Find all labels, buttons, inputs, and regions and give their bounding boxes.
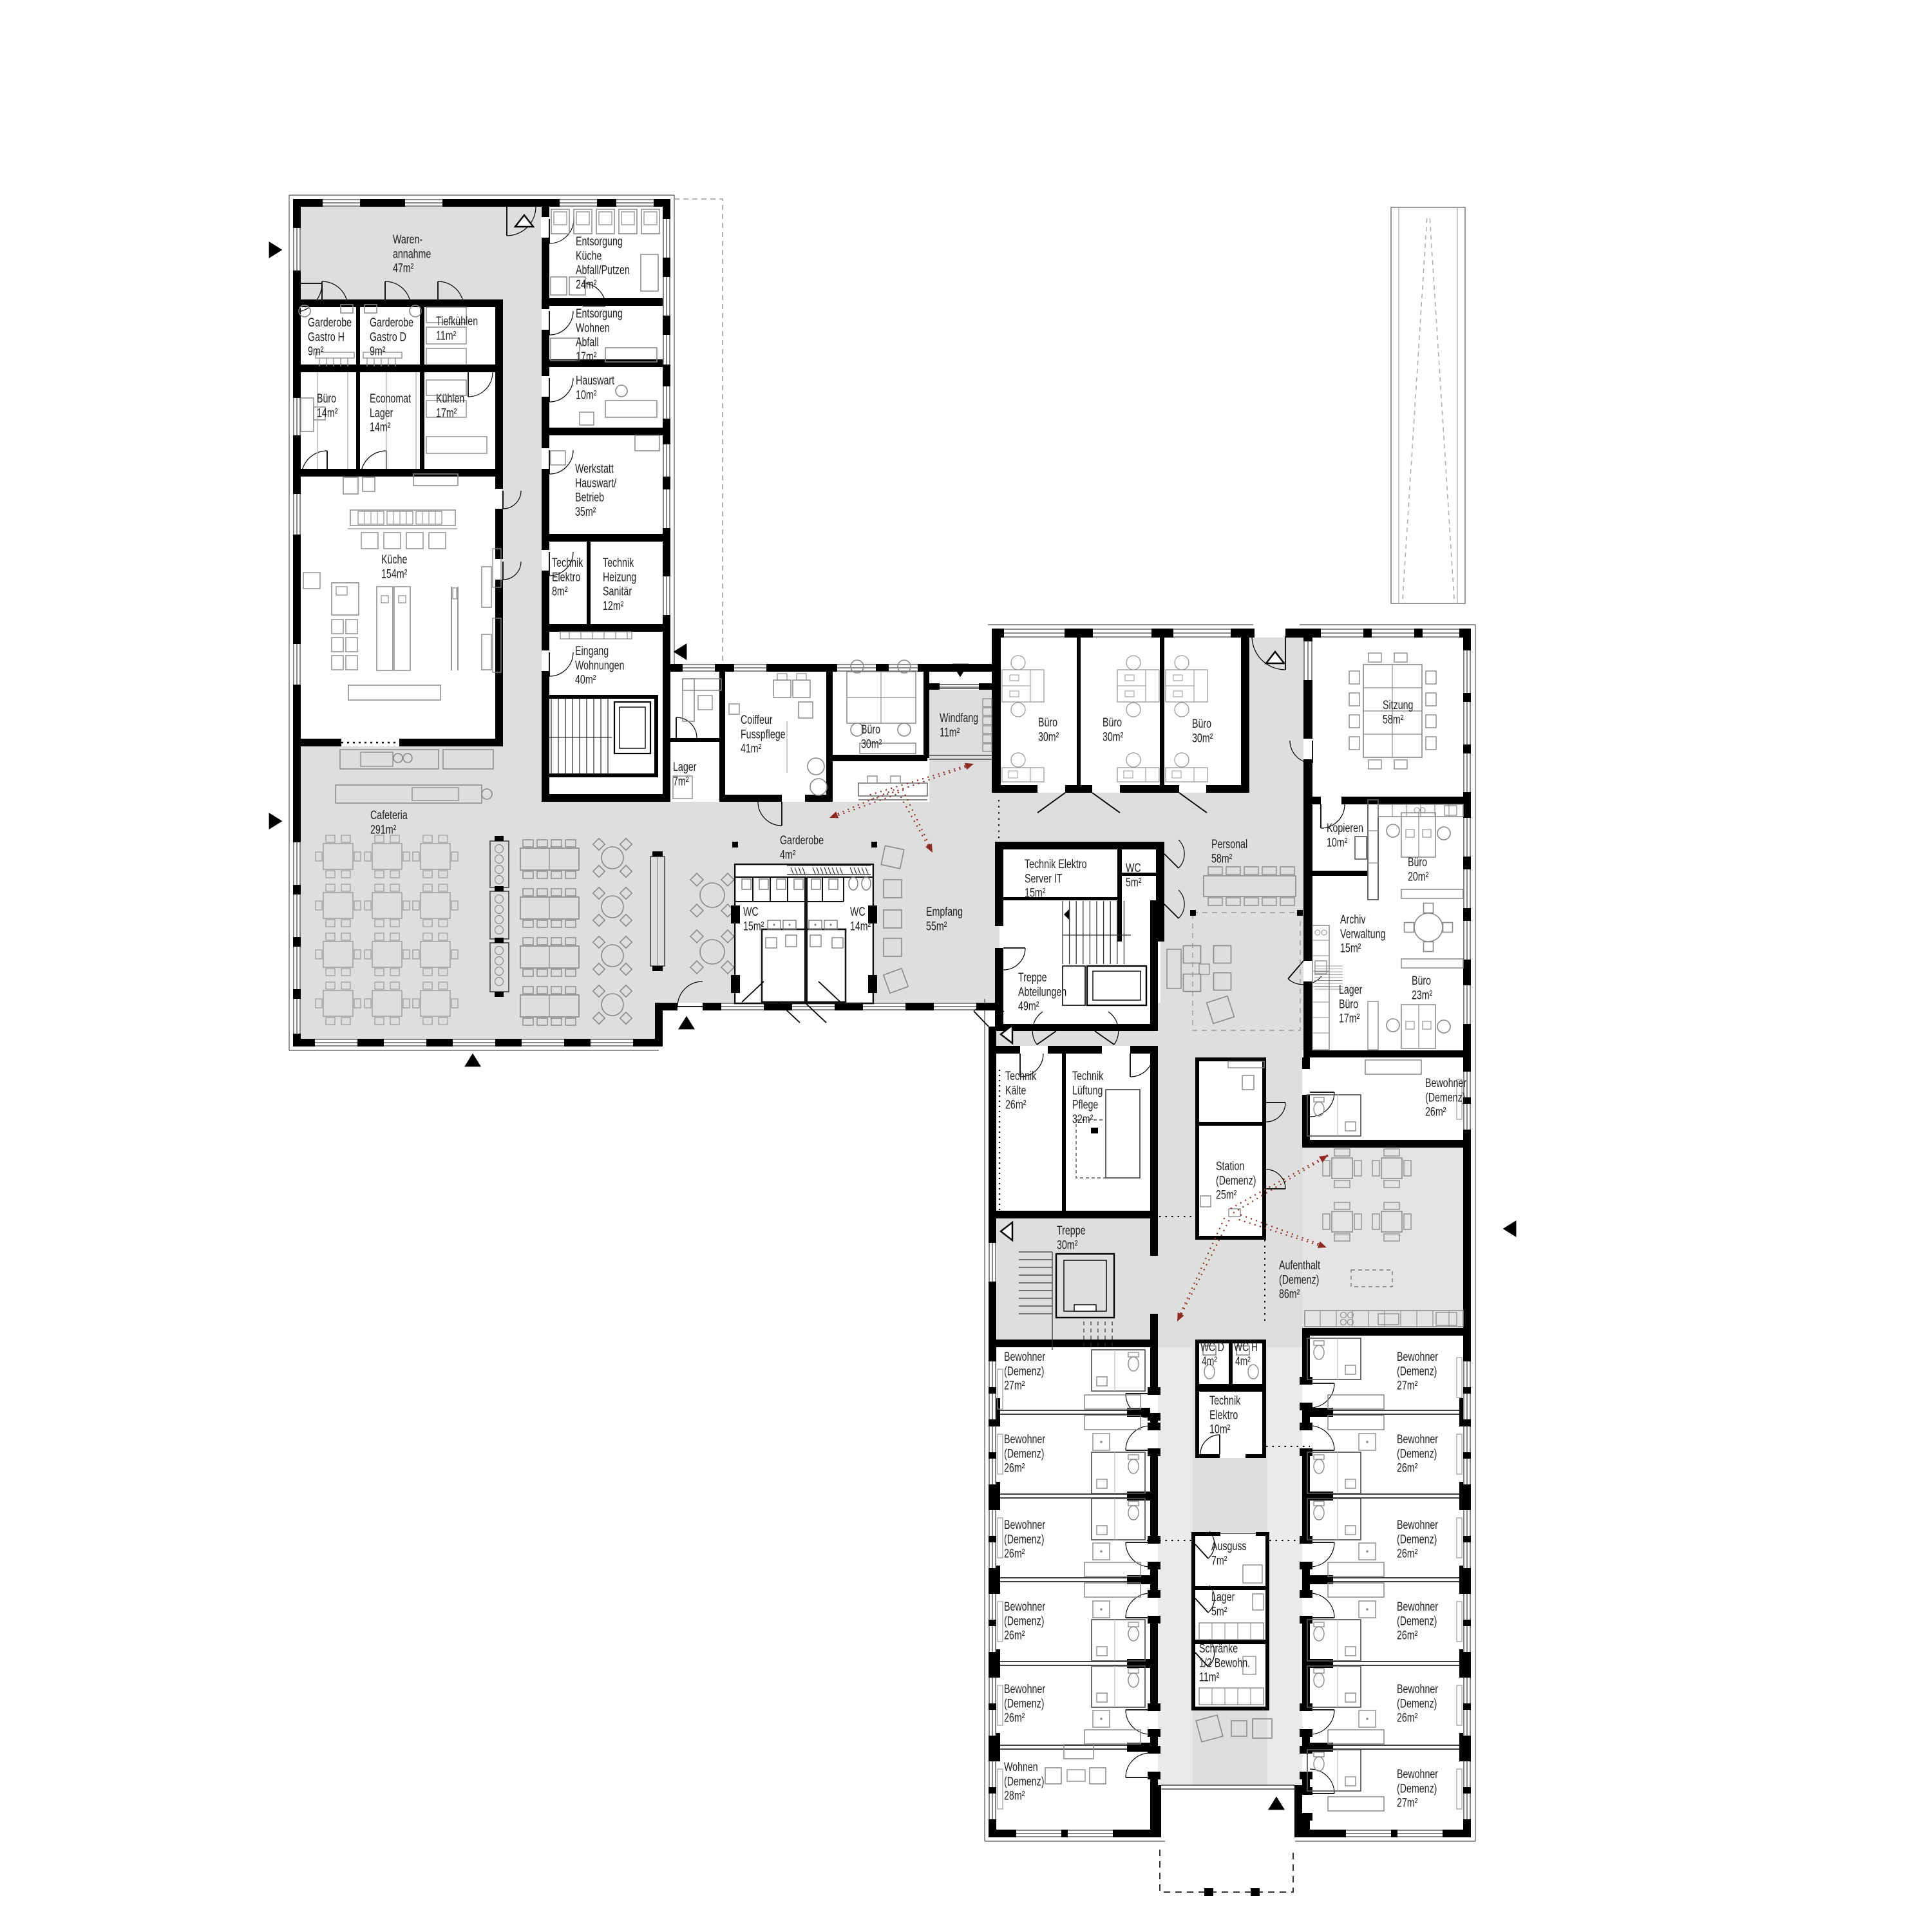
- svg-text:Entsorgung: Entsorgung: [576, 307, 623, 321]
- svg-text:Server IT: Server IT: [1025, 871, 1063, 885]
- svg-text:Lager: Lager: [673, 760, 697, 774]
- svg-text:Schränke: Schränke: [1199, 1642, 1238, 1656]
- svg-text:27m²: 27m²: [1397, 1795, 1418, 1810]
- svg-text:5m²: 5m²: [1126, 875, 1142, 889]
- svg-text:154m²: 154m²: [381, 567, 408, 581]
- svg-text:26m²: 26m²: [1397, 1710, 1418, 1725]
- svg-text:Büro: Büro: [1038, 715, 1057, 730]
- svg-text:25m²: 25m²: [1216, 1188, 1237, 1202]
- svg-text:4m²: 4m²: [780, 848, 796, 862]
- svg-text:55m²: 55m²: [926, 919, 947, 933]
- svg-text:Bewohner: Bewohner: [1397, 1682, 1438, 1696]
- svg-text:Hauswart/: Hauswart/: [575, 476, 616, 490]
- svg-text:35m²: 35m²: [575, 505, 596, 519]
- svg-text:Technik: Technik: [552, 556, 583, 570]
- svg-text:Sanitär: Sanitär: [603, 584, 632, 598]
- svg-text:Bewohner: Bewohner: [1004, 1600, 1045, 1614]
- svg-text:26m²: 26m²: [1004, 1628, 1025, 1642]
- svg-text:Fusspflege: Fusspflege: [741, 727, 786, 741]
- svg-text:23m²: 23m²: [1412, 988, 1433, 1002]
- svg-text:26m²: 26m²: [1005, 1097, 1027, 1112]
- svg-text:Pflege: Pflege: [1072, 1097, 1098, 1112]
- svg-text:Bewohner: Bewohner: [1004, 1432, 1045, 1446]
- svg-text:WC H: WC H: [1234, 1340, 1258, 1354]
- svg-text:Coiffeur: Coiffeur: [741, 713, 773, 727]
- svg-text:28m²: 28m²: [1004, 1788, 1025, 1803]
- svg-text:Heizung: Heizung: [603, 570, 636, 584]
- svg-text:(Demenz): (Demenz): [1397, 1532, 1437, 1546]
- svg-text:Eingang: Eingang: [575, 644, 609, 658]
- svg-text:(Demenz): (Demenz): [1397, 1446, 1437, 1461]
- svg-text:Sitzung: Sitzung: [1383, 698, 1413, 712]
- svg-text:30m²: 30m²: [1038, 730, 1059, 744]
- svg-text:86m²: 86m²: [1279, 1287, 1300, 1301]
- svg-text:Treppe: Treppe: [1057, 1224, 1086, 1238]
- svg-text:Garderobe: Garderobe: [308, 316, 352, 330]
- svg-text:58m²: 58m²: [1383, 712, 1404, 726]
- svg-text:WC: WC: [1126, 861, 1141, 875]
- svg-text:(Demenz): (Demenz): [1279, 1273, 1319, 1287]
- svg-text:Lager: Lager: [1339, 983, 1363, 997]
- svg-text:Lüftung: Lüftung: [1072, 1083, 1103, 1097]
- svg-text:Station: Station: [1216, 1159, 1244, 1173]
- svg-text:11m²: 11m²: [436, 328, 457, 343]
- svg-text:Büro: Büro: [1339, 997, 1358, 1011]
- svg-text:Abfall: Abfall: [576, 335, 599, 349]
- svg-text:Verwaltung: Verwaltung: [1340, 927, 1385, 941]
- svg-text:(Demenz): (Demenz): [1216, 1173, 1256, 1188]
- svg-text:Archiv: Archiv: [1340, 913, 1366, 927]
- svg-text:11m²: 11m²: [940, 725, 960, 739]
- svg-text:Büro: Büro: [861, 723, 880, 737]
- svg-text:Bewohner: Bewohner: [1397, 1600, 1438, 1614]
- svg-text:(Demenz): (Demenz): [1397, 1614, 1437, 1628]
- svg-text:Bewohner: Bewohner: [1397, 1518, 1438, 1532]
- svg-text:Bewohner: Bewohner: [1425, 1076, 1466, 1090]
- svg-text:10m²: 10m²: [1209, 1422, 1231, 1436]
- svg-text:Elektro: Elektro: [552, 570, 580, 584]
- svg-text:Wohnungen: Wohnungen: [575, 658, 624, 672]
- svg-text:5m²: 5m²: [1211, 1604, 1227, 1618]
- svg-text:Bewohner: Bewohner: [1004, 1350, 1045, 1364]
- svg-text:Bewohner: Bewohner: [1397, 1350, 1438, 1364]
- svg-text:Küche: Küche: [381, 553, 407, 567]
- svg-text:30m²: 30m²: [861, 737, 882, 751]
- svg-text:14m²: 14m²: [850, 919, 871, 933]
- svg-text:Kälte: Kälte: [1005, 1083, 1026, 1097]
- svg-text:Waren-: Waren-: [393, 232, 422, 247]
- svg-text:(Demenz): (Demenz): [1397, 1696, 1437, 1710]
- svg-text:26m²: 26m²: [1397, 1628, 1418, 1642]
- svg-text:Lager: Lager: [370, 406, 393, 420]
- svg-text:20m²: 20m²: [1408, 869, 1429, 884]
- svg-text:10m²: 10m²: [1327, 835, 1348, 849]
- svg-text:26m²: 26m²: [1004, 1546, 1025, 1560]
- svg-text:14m²: 14m²: [370, 420, 391, 434]
- svg-text:10m²: 10m²: [576, 388, 597, 402]
- svg-text:41m²: 41m²: [741, 741, 762, 755]
- svg-text:12m²: 12m²: [603, 599, 624, 613]
- svg-text:17m²: 17m²: [576, 350, 597, 364]
- svg-text:Windfang: Windfang: [940, 711, 978, 725]
- svg-text:Cafeteria: Cafeteria: [370, 808, 408, 822]
- svg-text:Kühlen: Kühlen: [436, 392, 464, 406]
- svg-text:40m²: 40m²: [575, 672, 596, 687]
- svg-text:9m²: 9m²: [370, 344, 386, 358]
- svg-text:annahme: annahme: [393, 247, 431, 261]
- svg-text:Büro: Büro: [1103, 715, 1122, 730]
- svg-text:Ausguss: Ausguss: [1211, 1539, 1247, 1553]
- svg-text:Hauswart: Hauswart: [576, 374, 614, 388]
- svg-text:Technik: Technik: [1209, 1394, 1241, 1408]
- svg-text:7m²: 7m²: [1211, 1553, 1227, 1567]
- svg-text:30m²: 30m²: [1057, 1238, 1078, 1252]
- svg-text:26m²: 26m²: [1425, 1104, 1446, 1119]
- svg-text:Technik: Technik: [603, 556, 634, 570]
- svg-text:17m²: 17m²: [436, 406, 457, 420]
- svg-text:30m²: 30m²: [1192, 731, 1213, 745]
- svg-text:Aufenthalt: Aufenthalt: [1279, 1258, 1320, 1273]
- svg-text:291m²: 291m²: [370, 822, 397, 837]
- svg-text:4m²: 4m²: [1235, 1354, 1251, 1368]
- svg-text:Elektro: Elektro: [1209, 1408, 1238, 1422]
- svg-text:Empfang: Empfang: [926, 905, 963, 919]
- svg-text:26m²: 26m²: [1004, 1710, 1025, 1725]
- svg-text:9m²: 9m²: [308, 344, 324, 358]
- svg-text:(Demenz): (Demenz): [1004, 1532, 1044, 1546]
- svg-text:Tiefkühlen: Tiefkühlen: [436, 314, 478, 328]
- svg-text:Technik Elektro: Technik Elektro: [1025, 857, 1086, 871]
- svg-text:Büro: Büro: [317, 392, 336, 406]
- svg-text:Abfall/Putzen: Abfall/Putzen: [576, 263, 630, 277]
- svg-text:26m²: 26m²: [1397, 1461, 1418, 1475]
- svg-text:WC: WC: [743, 905, 759, 919]
- svg-text:Werkstatt: Werkstatt: [575, 462, 614, 476]
- svg-text:Entsorgung: Entsorgung: [576, 234, 623, 249]
- svg-text:Abteilungen: Abteilungen: [1018, 985, 1066, 999]
- svg-text:Treppe: Treppe: [1018, 971, 1047, 985]
- svg-text:27m²: 27m²: [1004, 1378, 1025, 1392]
- svg-text:26m²: 26m²: [1004, 1461, 1025, 1475]
- svg-text:Gastro D: Gastro D: [370, 330, 406, 344]
- svg-text:15m²: 15m²: [1025, 885, 1046, 900]
- svg-text:14m²: 14m²: [317, 406, 338, 420]
- svg-text:4m²: 4m²: [1202, 1354, 1217, 1368]
- svg-text:(Demenz): (Demenz): [1004, 1446, 1044, 1461]
- svg-text:7m²: 7m²: [673, 774, 689, 788]
- svg-text:Lager: Lager: [1211, 1590, 1235, 1604]
- svg-text:(Demenz): (Demenz): [1397, 1364, 1437, 1378]
- svg-text:(Demenz): (Demenz): [1425, 1090, 1465, 1104]
- svg-text:Economat: Economat: [370, 392, 411, 406]
- svg-text:WC: WC: [850, 905, 866, 919]
- svg-text:Kopieren: Kopieren: [1327, 821, 1363, 835]
- svg-text:17m²: 17m²: [1339, 1011, 1360, 1025]
- svg-text:Büro: Büro: [1192, 717, 1211, 731]
- svg-text:26m²: 26m²: [1397, 1546, 1418, 1560]
- svg-text:11m²: 11m²: [1199, 1670, 1220, 1684]
- svg-text:Büro: Büro: [1408, 855, 1427, 869]
- svg-text:Technik: Technik: [1005, 1069, 1037, 1083]
- svg-text:(Demenz): (Demenz): [1004, 1614, 1044, 1628]
- svg-text:(Demenz): (Demenz): [1004, 1696, 1044, 1710]
- svg-text:WC D: WC D: [1200, 1340, 1224, 1354]
- svg-text:15m²: 15m²: [743, 919, 764, 933]
- svg-text:Garderobe: Garderobe: [780, 833, 824, 848]
- svg-text:Wohnen: Wohnen: [576, 321, 610, 335]
- svg-text:Wohnen: Wohnen: [1004, 1760, 1038, 1774]
- svg-text:24m²: 24m²: [576, 278, 597, 292]
- svg-text:(Demenz): (Demenz): [1004, 1364, 1044, 1378]
- svg-text:(Demenz): (Demenz): [1397, 1781, 1437, 1795]
- svg-text:Büro: Büro: [1412, 974, 1431, 988]
- svg-text:Technik: Technik: [1072, 1069, 1104, 1083]
- svg-text:15m²: 15m²: [1340, 941, 1361, 955]
- svg-text:Betrieb: Betrieb: [575, 490, 604, 504]
- svg-text:30m²: 30m²: [1103, 730, 1124, 744]
- svg-text:58m²: 58m²: [1211, 851, 1233, 866]
- svg-text:49m²: 49m²: [1018, 999, 1039, 1013]
- svg-text:Garderobe: Garderobe: [370, 316, 413, 330]
- svg-text:Bewohner: Bewohner: [1004, 1682, 1045, 1696]
- svg-text:32m²: 32m²: [1072, 1112, 1094, 1126]
- svg-text:Küche: Küche: [576, 249, 601, 263]
- svg-text:(Demenz): (Demenz): [1004, 1774, 1044, 1788]
- svg-text:Bewohner: Bewohner: [1397, 1432, 1438, 1446]
- svg-text:Gastro H: Gastro H: [308, 330, 345, 344]
- svg-text:1/2 Bewohn.: 1/2 Bewohn.: [1199, 1656, 1250, 1670]
- svg-text:8m²: 8m²: [552, 584, 568, 598]
- svg-text:27m²: 27m²: [1397, 1378, 1418, 1392]
- svg-text:Personal: Personal: [1211, 837, 1247, 851]
- svg-text:Bewohner: Bewohner: [1004, 1518, 1045, 1532]
- svg-text:Bewohner: Bewohner: [1397, 1767, 1438, 1781]
- svg-text:47m²: 47m²: [393, 261, 414, 275]
